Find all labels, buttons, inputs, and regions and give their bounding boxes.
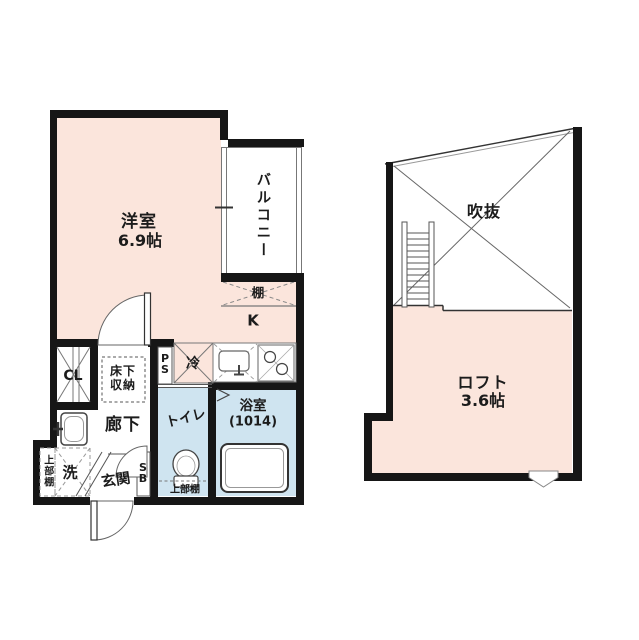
closet-label: CL	[63, 368, 82, 384]
wall	[386, 162, 393, 421]
washer-label: 洗	[62, 464, 77, 481]
entrance-door-swing	[91, 501, 133, 540]
stove-icon	[258, 345, 294, 381]
underfloor-storage-label: 床下収納	[106, 365, 140, 393]
kitchen-counter	[213, 343, 296, 382]
loft-opening-arrow-icon	[529, 471, 558, 487]
balcony-label: バルコニー	[254, 172, 271, 260]
shelf-label: 棚	[252, 286, 265, 300]
floor-plan-drawing	[0, 0, 639, 640]
pipe-space-label: PS	[159, 353, 171, 375]
hallway-label: 廊下	[105, 416, 141, 436]
wall	[134, 497, 304, 505]
loft-floor-plan	[364, 127, 582, 487]
wall	[228, 139, 304, 147]
loft-size: 3.6帖	[461, 392, 505, 410]
wall	[33, 497, 90, 505]
wall	[50, 110, 57, 448]
wall	[573, 127, 582, 481]
void-label: 吹抜	[467, 203, 501, 221]
wall	[150, 339, 158, 505]
upper-shelf-toilet-label: 上部棚	[170, 484, 200, 496]
wall	[50, 110, 228, 118]
wall	[364, 413, 372, 481]
wall	[208, 382, 296, 390]
bathtub-icon	[221, 444, 288, 492]
sloped-edge	[385, 129, 574, 168]
upper-shelf-left-label: 上部棚	[41, 455, 53, 488]
loft-label: ロフト	[457, 374, 508, 392]
ladder-icon	[402, 222, 434, 307]
wall	[220, 110, 228, 140]
wall	[90, 345, 98, 410]
bathroom-size: (1014)	[229, 416, 277, 431]
wall	[33, 440, 40, 505]
shoe-box-label: SB	[137, 462, 149, 484]
wall	[221, 273, 304, 282]
wall	[296, 273, 304, 505]
toilet-top-partition	[158, 385, 212, 388]
bathroom-label: 浴室	[240, 399, 267, 415]
washbasin-icon	[53, 413, 87, 445]
kitchen-label: K	[247, 312, 259, 329]
floor-plan-canvas: 洋室 6.9帖 バルコニー 棚 K 冷 PS CL 床下収納 廊下 トイレ 浴室…	[0, 0, 639, 640]
sink-icon	[219, 351, 249, 375]
wall	[208, 382, 216, 505]
fridge-label: 冷	[186, 356, 200, 372]
western-room-size: 6.9帖	[118, 232, 162, 250]
